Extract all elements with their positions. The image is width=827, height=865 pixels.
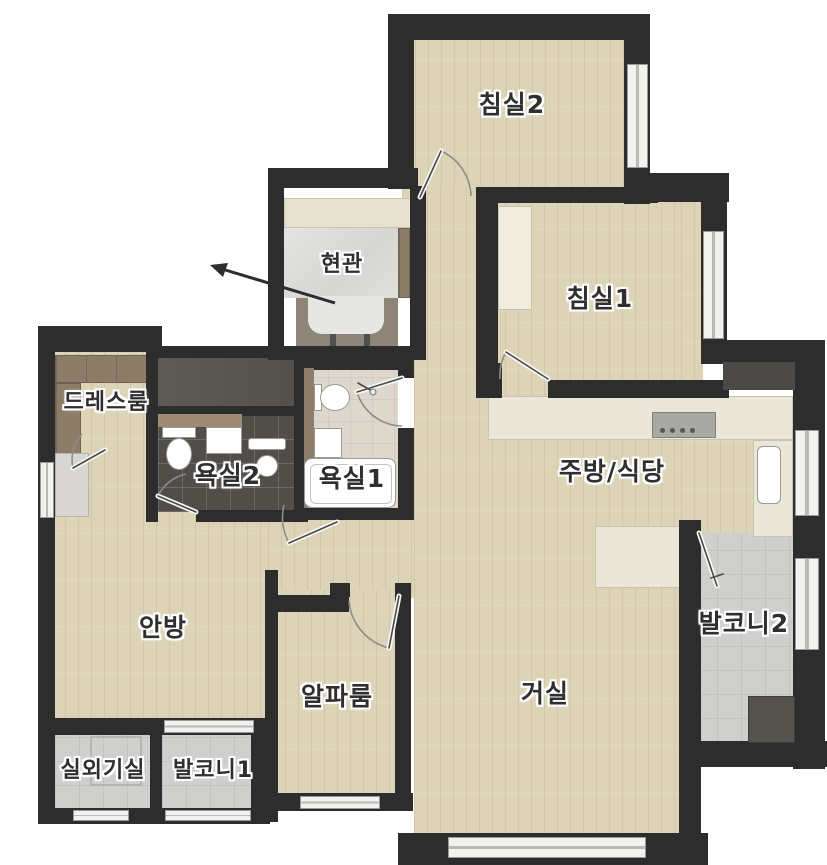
outdoor-unit-room-label: 실외기실 [61, 752, 146, 784]
bedroom2-door [420, 151, 471, 197]
bathroom1-label: 욕실1 [319, 459, 385, 495]
master-bedroom-label: 안방 [139, 608, 187, 644]
balcony1-label: 발코니1 [173, 752, 253, 784]
balcony2-label: 발코니2 [699, 604, 789, 640]
alpha-room-door [349, 596, 399, 648]
bedroom1-door [500, 352, 548, 379]
bathroom2-door [158, 474, 196, 512]
dressroom-door [72, 434, 105, 468]
dressroom-label: 드레스룸 [64, 384, 149, 416]
bathroom2-label: 욕실2 [195, 456, 261, 492]
door-layer [0, 0, 827, 865]
bathroom1-door [357, 378, 402, 426]
entry-direction-arrow [210, 263, 335, 303]
alpha-room-label: 알파룸 [301, 677, 373, 713]
master-bedroom-door [282, 505, 337, 543]
entrance-label: 현관 [321, 246, 363, 278]
bedroom1-label: 침실1 [567, 279, 633, 315]
bedroom2-label: 침실2 [479, 85, 545, 121]
floorplan-canvas: 침실2 현관 침실1 드레스룸 욕실2 욕실1 주방/식당 안방 알파룸 거실 … [0, 0, 827, 865]
living-room-label: 거실 [521, 674, 569, 710]
kitchen-dining-label: 주방/식당 [559, 452, 665, 488]
balcony2-door [699, 533, 723, 586]
